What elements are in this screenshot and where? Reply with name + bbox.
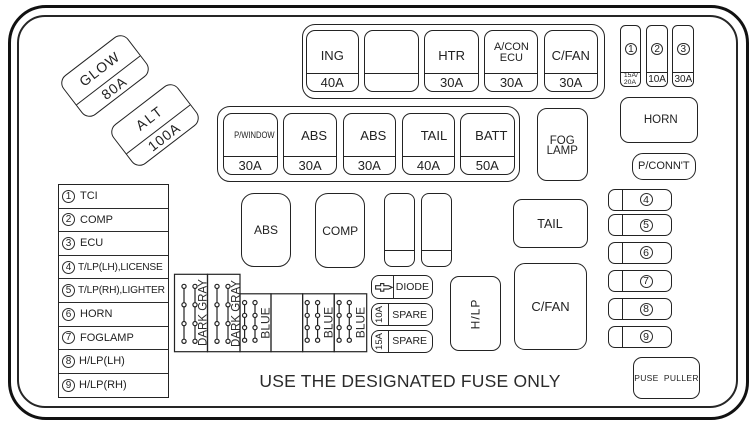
svg-text:DARK GRAY: DARK GRAY <box>198 279 210 346</box>
svg-text:BLUE: BLUE <box>259 307 273 338</box>
svg-text:BLUE: BLUE <box>354 307 368 338</box>
svg-text:DARK GRAY: DARK GRAY <box>231 280 243 347</box>
svg-text:BLUE: BLUE <box>322 307 336 338</box>
